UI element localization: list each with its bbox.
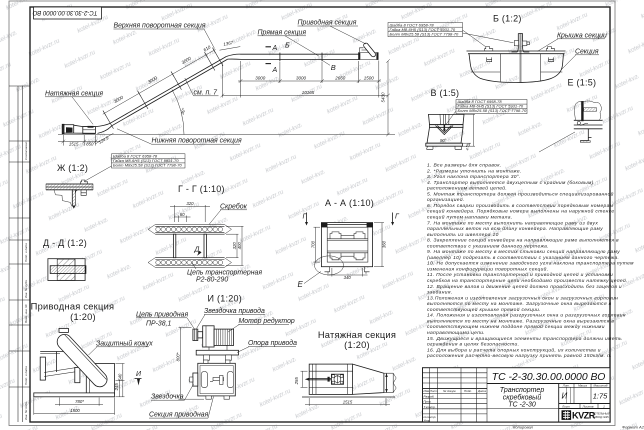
- svg-text:см. п. 7: см. п. 7: [194, 89, 219, 96]
- svg-text:Ж (1:2): Ж (1:2): [57, 163, 88, 173]
- svg-text:340: 340: [344, 275, 352, 280]
- svg-text:Г - Г (1:10): Г - Г (1:10): [178, 184, 225, 194]
- svg-text:5430: 5430: [380, 92, 385, 103]
- svg-text:Звездочка: Звездочка: [151, 393, 184, 401]
- svg-text:12. Вращение валов и движение: 12. Вращение валов и движение цепей долж…: [427, 283, 622, 290]
- svg-text:Опора привода: Опора привода: [248, 339, 297, 347]
- svg-text:Б: Б: [285, 42, 290, 49]
- svg-text:ЗАВОД №95: ЗАВОД №95: [593, 415, 610, 419]
- svg-text:2. *Размеры уточнить на монта: 2. *Размеры уточнить на монтаже.: [426, 168, 522, 174]
- svg-text:Е: Е: [298, 280, 304, 289]
- svg-text:Изм.Лист: Изм.Лист: [424, 389, 439, 393]
- svg-text:направляющими цепи.: направляющими цепи.: [427, 331, 485, 336]
- svg-text:Т.контр.: Т.контр.: [424, 405, 436, 409]
- svg-text:ограждения в целях безопасност: ограждения в целях безопасности.: [427, 342, 519, 348]
- svg-text:255: 255: [294, 377, 299, 386]
- svg-text:6. Порядок сварки производит: 6. Порядок сварки производить в соответс…: [427, 203, 614, 209]
- svg-text:Скребок: Скребок: [220, 202, 248, 210]
- svg-text:№ докум.: № докум.: [443, 389, 456, 393]
- svg-text:700: 700: [310, 240, 315, 248]
- svg-text:1500: 1500: [364, 76, 375, 81]
- svg-text:2660: 2660: [334, 76, 346, 81]
- svg-text:расположением ветвей цепей.: расположением ветвей цепей.: [426, 185, 507, 192]
- svg-text:360: 360: [381, 240, 386, 248]
- svg-text:Утв.: Утв.: [424, 419, 431, 423]
- svg-text:3000: 3000: [255, 76, 266, 81]
- svg-text:1500: 1500: [70, 408, 80, 413]
- svg-text:ТС -2-30: ТС -2-30: [508, 402, 536, 409]
- svg-text:9. На монтаже по месту в мест: 9. На монтаже по месту в местах стыковки…: [427, 248, 620, 255]
- svg-text:Подп. и дата: Подп. и дата: [24, 243, 28, 262]
- svg-text:Подп.: Подп.: [464, 389, 472, 393]
- svg-text:соответствии с указанием данно: соответствии с указанием данного чертежа…: [427, 243, 549, 249]
- svg-text:расположения расчетно-весовую: расположения расчетно-весовую нагрузку п…: [426, 352, 612, 359]
- svg-text:320: 320: [186, 201, 194, 206]
- svg-text:8. Закрепление секций конвей: 8. Закрепление секций конвейера на напра…: [427, 237, 619, 244]
- svg-text:245: 245: [114, 383, 119, 392]
- svg-text:3000: 3000: [296, 76, 307, 81]
- svg-text:организацией.: организацией.: [427, 196, 465, 203]
- svg-text:(1:20): (1:20): [70, 312, 96, 322]
- svg-text:1515: 1515: [69, 142, 79, 147]
- svg-text:Подп. и дата: Подп. и дата: [24, 366, 28, 385]
- svg-text:Нижняя поворотная секция: Нижняя поворотная секция: [152, 138, 242, 145]
- svg-text:Болт М8х25.58 (S13) ГОСТ 779: Болт М8х25.58 (S13) ГОСТ 7798-70: [458, 108, 527, 113]
- svg-text:Цепь приводная: Цепь приводная: [136, 310, 188, 318]
- svg-text:Лит.: Лит.: [562, 383, 570, 387]
- svg-text:780*: 780*: [75, 399, 84, 404]
- svg-text:1515: 1515: [343, 399, 353, 404]
- svg-text:800*: 800*: [175, 352, 180, 361]
- svg-text:Болт М8х25.58 (S13) ГОСТ 779: Болт М8х25.58 (S13) ГОСТ 7798-70: [390, 31, 459, 36]
- svg-text:1. Все размеры для справок.: 1. Все размеры для справок.: [427, 163, 502, 169]
- svg-text:4. Транспортер выполняется д: 4. Транспортер выполняется двухцепным с …: [427, 179, 594, 186]
- svg-text:секций путем наплавки метала.: секций путем наплавки метала.: [427, 214, 513, 221]
- svg-text:Формат А2: Формат А2: [622, 424, 644, 429]
- svg-text:Разраб.: Разраб.: [424, 395, 435, 399]
- svg-text:Прямая секция: Прямая секция: [258, 29, 307, 36]
- svg-text:параллельных веток на всю длин: параллельных веток на всю длину конвейер…: [427, 225, 603, 232]
- svg-text:Согласовано: Согласовано: [24, 141, 28, 160]
- svg-text:секций конвейера. Порядковые: секций конвейера. Порядковые номера выпо…: [427, 208, 614, 215]
- svg-text:Приводная секция: Приводная секция: [298, 19, 357, 27]
- svg-text:Транспортер: Транспортер: [500, 387, 545, 394]
- svg-text:(швеллер 10) подрезать в со: (швеллер 10) подрезать в соответствии с …: [427, 255, 619, 261]
- svg-text:Лист: Лист: [561, 404, 570, 408]
- svg-text:540: 540: [118, 373, 123, 381]
- svg-text:Инв. № подл.: Инв. № подл.: [24, 401, 28, 420]
- svg-text:Натяжная секция: Натяжная секция: [318, 330, 396, 340]
- svg-text:Копировал: Копировал: [513, 424, 534, 429]
- svg-text:Мотор редуктор: Мотор редуктор: [239, 317, 295, 325]
- svg-text:Инв. № дубл.: Инв. № дубл.: [24, 279, 28, 298]
- svg-text:ТС-2-30.30.00.0000 ВО: ТС-2-30.30.00.0000 ВО: [32, 9, 97, 16]
- svg-text:Секция: Секция: [575, 48, 599, 55]
- svg-text:5. Монтаж транспортера должен: 5. Монтаж транспортера должен производит…: [427, 190, 614, 197]
- svg-text:(1:20): (1:20): [344, 340, 370, 350]
- svg-text:Листов: Листов: [582, 404, 594, 408]
- svg-text:1:75: 1:75: [593, 392, 608, 401]
- svg-text:Масштаб: Масштаб: [593, 383, 607, 387]
- svg-text:И (1:20): И (1:20): [208, 294, 242, 304]
- svg-text:3. Угол наклона транспортера: 3. Угол наклона транспортера 30°.: [427, 174, 521, 180]
- svg-text:14. Положения и изготовления: 14. Положения и изготовления разгрузочны…: [427, 313, 626, 319]
- svg-text:выполнить из швеллера 10: выполнить из швеллера 10: [427, 232, 499, 238]
- svg-text:4.5±: 4.5±: [465, 143, 469, 150]
- svg-text:Крышка секции: Крышка секции: [557, 32, 607, 39]
- svg-text:7. На монтаже по месту выполн: 7. На монтаже по месту выполнить направл…: [427, 220, 598, 226]
- svg-text:Д: Д: [194, 247, 200, 254]
- svg-text:10. Не допускается изменение з: 10. Не допускается изменение заводского …: [427, 261, 634, 267]
- svg-text:А: А: [272, 45, 278, 52]
- svg-text:Д - Д (1:2): Д - Д (1:2): [43, 238, 87, 248]
- svg-text:Защитный кожух: Защитный кожух: [96, 339, 153, 347]
- svg-text:соответствующем нижнем поддоне: соответствующем нижнем поддоне прямой се…: [427, 323, 605, 330]
- svg-text:ПР-38,1: ПР-38,1: [146, 321, 171, 328]
- svg-text:Е (1:5): Е (1:5): [568, 77, 597, 87]
- svg-text:400: 400: [237, 242, 242, 250]
- svg-text:80: 80: [180, 212, 185, 217]
- svg-text:Пров.: Пров.: [424, 400, 432, 404]
- svg-text:ТС -2-30.30.00.0000 ВО: ТС -2-30.30.00.0000 ВО: [492, 372, 606, 383]
- svg-text:А - А (1:10): А - А (1:10): [325, 198, 374, 208]
- svg-text:Верхняя поворотная секция: Верхняя поворотная секция: [114, 23, 206, 30]
- svg-text:Натяжная секция: Натяжная секция: [45, 90, 103, 97]
- svg-text:выполняются по месту на монтаж: выполняются по месту на монтаже. Загрузо…: [427, 301, 612, 307]
- svg-text:А: А: [272, 67, 278, 74]
- svg-text:соответствующей крышке прямой: соответствующей крышке прямой секции.: [427, 306, 541, 313]
- svg-text:11. После установки транспорт: 11. После установки транспортерной и при…: [427, 271, 613, 278]
- svg-text:скребковый: скребковый: [503, 394, 542, 402]
- svg-text:скребков на транспортерные цеп: скребков на транспортерные цепи необходи…: [427, 277, 628, 284]
- svg-text:16. Для выбора и расчета опор: 16. Для выбора и расчета опорных констру…: [427, 346, 601, 353]
- svg-text:выполняются по месту на монтаж: выполняются по месту на монтаже. Разгруз…: [427, 318, 614, 324]
- svg-text:Б (1:2): Б (1:2): [493, 14, 522, 24]
- svg-text:Взам. инв. №: Взам. инв. №: [24, 304, 28, 323]
- svg-text:Р2-80-290: Р2-80-290: [196, 277, 228, 284]
- svg-text:15. Движущиеся и вращающиеся: 15. Движущиеся и вращающиеся элементы тр…: [427, 336, 622, 342]
- svg-text:В (1:5): В (1:5): [431, 88, 460, 98]
- svg-text:Болт М8х25.58 (S13) ГОСТ 779: Болт М8х25.58 (S13) ГОСТ 7798-70: [113, 163, 182, 168]
- svg-text:изменения конфигурации поворот: изменения конфигурации поворотных секций…: [427, 266, 548, 273]
- svg-text:850: 850: [86, 142, 94, 147]
- svg-text:заедания.: заедания.: [426, 290, 452, 296]
- svg-text:13.Положения и изготовления за: 13.Положения и изготовления загрузочных …: [427, 295, 618, 301]
- svg-text:Масса: Масса: [578, 383, 587, 387]
- svg-text:90°: 90°: [440, 138, 447, 143]
- svg-text:В: В: [331, 63, 336, 72]
- svg-text:Дата: Дата: [477, 389, 486, 393]
- svg-text:И: И: [562, 391, 568, 400]
- svg-text:Звездочка привода: Звездочка привода: [204, 307, 265, 315]
- svg-text:10165: 10165: [302, 90, 315, 95]
- svg-text:Приводная секция: Приводная секция: [31, 302, 115, 312]
- svg-text:Секция приводная: Секция приводная: [149, 411, 209, 419]
